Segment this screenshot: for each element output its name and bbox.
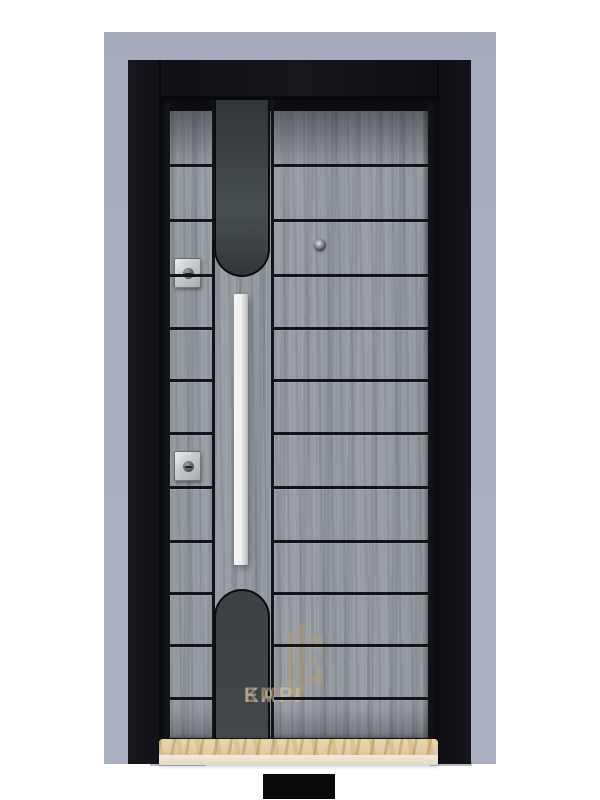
- panel-groove-line: [170, 486, 212, 489]
- panel-groove-line: [274, 164, 428, 167]
- keyhole-icon: [183, 461, 194, 472]
- door-leaf: EMİN KAPI: [170, 100, 428, 738]
- panel-groove-line: [170, 379, 212, 382]
- top-charcoal-insert: [214, 100, 270, 277]
- product-photo-stage: EMİN KAPI: [0, 0, 600, 800]
- marble-front-face: [159, 755, 438, 765]
- lock-cylinder-top: [174, 258, 201, 288]
- bottom-black-block: [263, 774, 335, 799]
- marble-veins: [159, 739, 438, 755]
- keyhole-slot: [185, 466, 192, 468]
- panel-groove-line: [274, 274, 428, 277]
- lock-cylinder-bottom: [174, 451, 201, 481]
- frame-jamb-left: [159, 97, 170, 764]
- panel-groove-line: [274, 379, 428, 382]
- panel-groove-line: [170, 644, 212, 647]
- vertical-groove-right: [271, 100, 274, 738]
- panel-groove-line: [170, 274, 212, 277]
- panel-groove-line: [170, 164, 212, 167]
- panel-groove-line: [170, 219, 212, 222]
- marble-threshold: [159, 739, 438, 765]
- peephole: [314, 239, 326, 251]
- panel-groove-line: [170, 697, 212, 700]
- panel-groove-line: [274, 697, 428, 700]
- panel-groove-line: [274, 219, 428, 222]
- frame-jamb-right: [428, 97, 439, 764]
- panel-groove-line: [274, 486, 428, 489]
- bottom-charcoal-insert: [214, 589, 270, 738]
- panel-groove-line: [274, 327, 428, 330]
- panel-groove-line: [274, 432, 428, 435]
- door-handle: [234, 294, 248, 565]
- panel-groove-line: [274, 644, 428, 647]
- panel-groove-line: [274, 540, 428, 543]
- panel-groove-line: [170, 592, 212, 595]
- panel-groove-line: [274, 592, 428, 595]
- leaf-top-rail: [170, 100, 428, 111]
- panel-groove-line: [170, 540, 212, 543]
- panel-groove-line: [170, 327, 212, 330]
- watermark-word-kapi: KAPI: [244, 684, 302, 708]
- panel-groove-line: [170, 432, 212, 435]
